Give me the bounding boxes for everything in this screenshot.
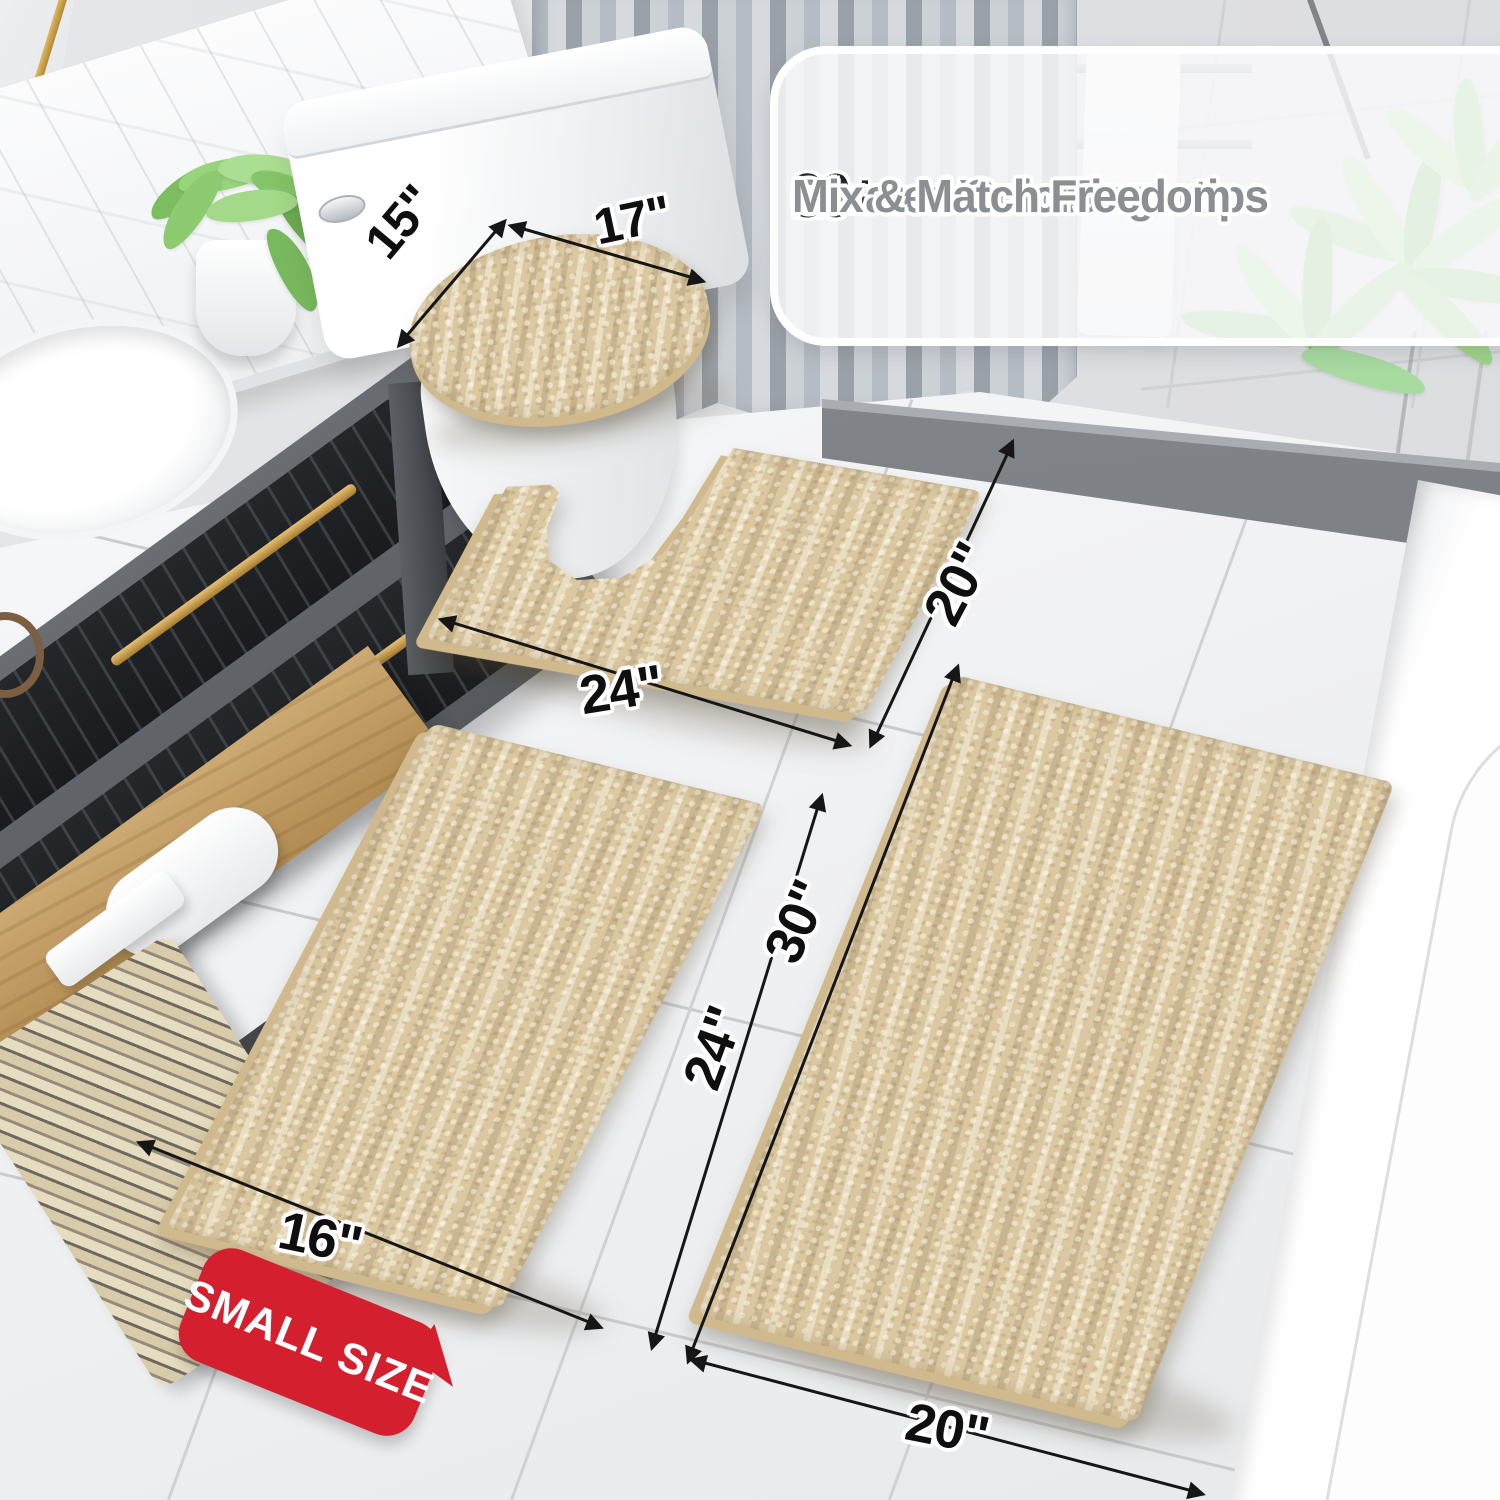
dimension-label-contour-width: 24" xyxy=(575,653,666,727)
feature-label: Mix & Match Freedom xyxy=(792,169,1230,223)
product-image: MISQ xyxy=(0,0,1500,1500)
feature-banner: ✔ 20+ Sizes at Your Fingertips ✔ 30+ Cur… xyxy=(770,46,1500,346)
